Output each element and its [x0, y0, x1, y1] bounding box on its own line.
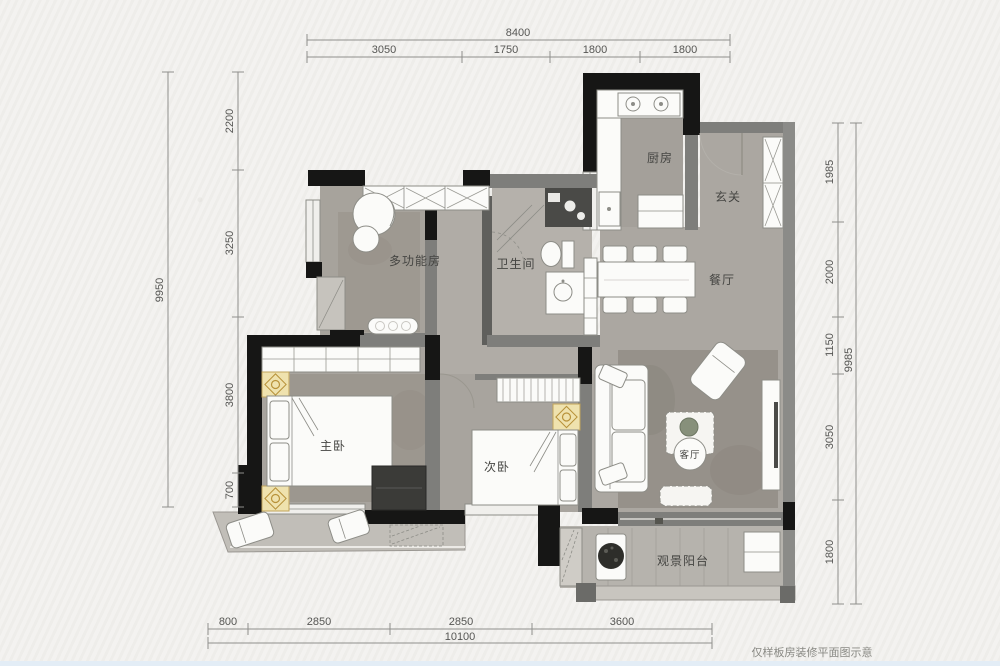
- kitchen-top-wall: [583, 73, 700, 90]
- sofa-cushion: [612, 380, 645, 430]
- master-bedroom-label: 主卧: [320, 439, 346, 453]
- kitchen-foyer-wall: [685, 135, 698, 230]
- vanity: [546, 272, 584, 314]
- right-wall-black-segment: [783, 502, 795, 530]
- bathroom-label: 卫生间: [496, 257, 535, 271]
- corridor-floor: [437, 210, 487, 347]
- dim-right-seg-1: 2000: [824, 260, 836, 284]
- table-plant: [680, 418, 698, 436]
- dim-right-seg-2: 1150: [824, 333, 836, 357]
- second-balcony-window: [465, 504, 540, 515]
- laundry-shelf: [548, 193, 560, 202]
- dining-chair: [633, 297, 657, 313]
- dim-left-total: 9950: [154, 278, 166, 302]
- fridge: [638, 195, 683, 228]
- rug-texture: [710, 445, 770, 495]
- plant-leaf-highlight: [611, 547, 614, 550]
- living-balcony-black: [582, 508, 618, 524]
- burner-center: [631, 102, 635, 106]
- master-top-gray-wall: [360, 335, 425, 347]
- pillow: [270, 443, 289, 481]
- pillow: [560, 434, 576, 466]
- balcony-top-black-wall: [365, 510, 465, 524]
- hallway-floor: [425, 347, 600, 374]
- dimensions-right: 1985 2000 1150 3050 1800 9985: [824, 123, 862, 604]
- dining-chair: [633, 246, 657, 262]
- dim-top-seg-2: 1800: [583, 44, 607, 56]
- second-bedroom-label: 次卧: [484, 460, 510, 474]
- dim-right-seg-3: 3050: [824, 425, 836, 449]
- railing-post-left: [576, 583, 596, 602]
- multifunction-left-black: [306, 262, 322, 278]
- second-right-wall: [578, 384, 592, 512]
- dim-bottom-seg-0: 800: [219, 616, 237, 628]
- dim-bottom-total: 10100: [445, 631, 476, 643]
- living-label: 客厅: [679, 449, 700, 461]
- master-top-black-wall: [247, 335, 360, 347]
- lounge-chair-ottoman: [353, 226, 379, 252]
- dim-left-seg-0: 2200: [224, 109, 236, 133]
- foyer-label: 玄关: [715, 189, 741, 204]
- dim-right-total: 9985: [843, 348, 855, 372]
- floor-plan-canvas: 厨房 玄关 餐厅 多功能房 卫生间 主卧 次卧 客厅 观景阳台 8400 305…: [0, 0, 1000, 666]
- pillow: [270, 401, 289, 439]
- washer-circle: [565, 201, 576, 212]
- dining-chair: [663, 297, 687, 313]
- dimensions-top: 8400 3050 1750 1800 1800: [307, 27, 730, 63]
- pillow: [560, 470, 576, 501]
- plan-caption: 仅样板房装修平面图示意: [752, 645, 873, 659]
- burner-center: [659, 102, 663, 106]
- dim-right-seg-4: 1800: [824, 540, 836, 564]
- master-second-divider-wall: [425, 380, 440, 512]
- living-bench: [660, 486, 712, 506]
- multifunction-label: 多功能房: [389, 253, 441, 268]
- bathroom-top-wall: [487, 174, 597, 188]
- bathroom-left-wall: [482, 196, 492, 345]
- kitchen-left-wall: [583, 73, 597, 172]
- kitchen-right-wall: [683, 73, 700, 135]
- sink-drain: [607, 207, 611, 211]
- nightstand: [262, 486, 289, 511]
- dining-chair: [663, 246, 687, 262]
- foyer-shoe-cabinet: [763, 137, 783, 228]
- multifunction-top-right-wall: [463, 170, 490, 186]
- dim-left-seg-2: 3800: [224, 383, 236, 407]
- dim-top-total: 8400: [506, 27, 530, 39]
- bathroom-shelf: [584, 258, 597, 335]
- toilet-bowl: [541, 242, 561, 267]
- multifunction-top-left-wall: [308, 170, 365, 186]
- dim-top-seg-0: 3050: [372, 44, 396, 56]
- multifunction-right-black: [425, 210, 437, 240]
- railing-post-right: [780, 586, 795, 603]
- dim-bottom-seg-3: 3600: [610, 616, 634, 628]
- master-closet: [262, 347, 420, 372]
- bathroom-bottom-wall: [487, 335, 600, 347]
- balcony-corner-black: [538, 502, 560, 566]
- view-balcony-label: 观景阳台: [657, 553, 709, 568]
- plant-leaf-highlight: [604, 549, 608, 553]
- nightstand: [553, 404, 580, 430]
- vanity-faucet: [562, 280, 565, 283]
- dim-left-seg-1: 3250: [224, 231, 236, 255]
- kitchen-label: 厨房: [647, 150, 673, 165]
- dining-label: 餐厅: [709, 272, 735, 287]
- dim-top-seg-3: 1800: [673, 44, 697, 56]
- tv: [774, 402, 778, 468]
- kitchen-counter-left: [597, 118, 621, 230]
- balcony-fixture: [655, 518, 663, 524]
- balcony-equipment: [560, 528, 582, 586]
- dining-chair: [603, 246, 627, 262]
- foyer-top-wall: [700, 122, 795, 133]
- plant-leaf-highlight: [614, 558, 618, 562]
- toilet-tank: [562, 241, 574, 268]
- view-balcony-railing: [578, 586, 795, 600]
- bottom-strip: [0, 661, 1000, 666]
- dim-left-seg-3: 700: [224, 481, 236, 499]
- dim-bottom-seg-2: 2850: [449, 616, 473, 628]
- washer-circle-small: [577, 212, 585, 220]
- dim-bottom-seg-1: 2850: [307, 616, 331, 628]
- dim-top-seg-1: 1750: [494, 44, 518, 56]
- dimensions-bottom: 800 2850 2850 3600 10100: [208, 616, 712, 649]
- dim-right-seg-0: 1985: [824, 160, 836, 184]
- bedroom-divider-top-black: [425, 335, 440, 380]
- nightstand: [262, 372, 289, 397]
- dimensions-left: 9950 2200 3250 3800 700: [154, 72, 244, 507]
- dining-chair: [603, 297, 627, 313]
- dining-furniture: [598, 246, 695, 313]
- master-left-wall: [247, 335, 262, 468]
